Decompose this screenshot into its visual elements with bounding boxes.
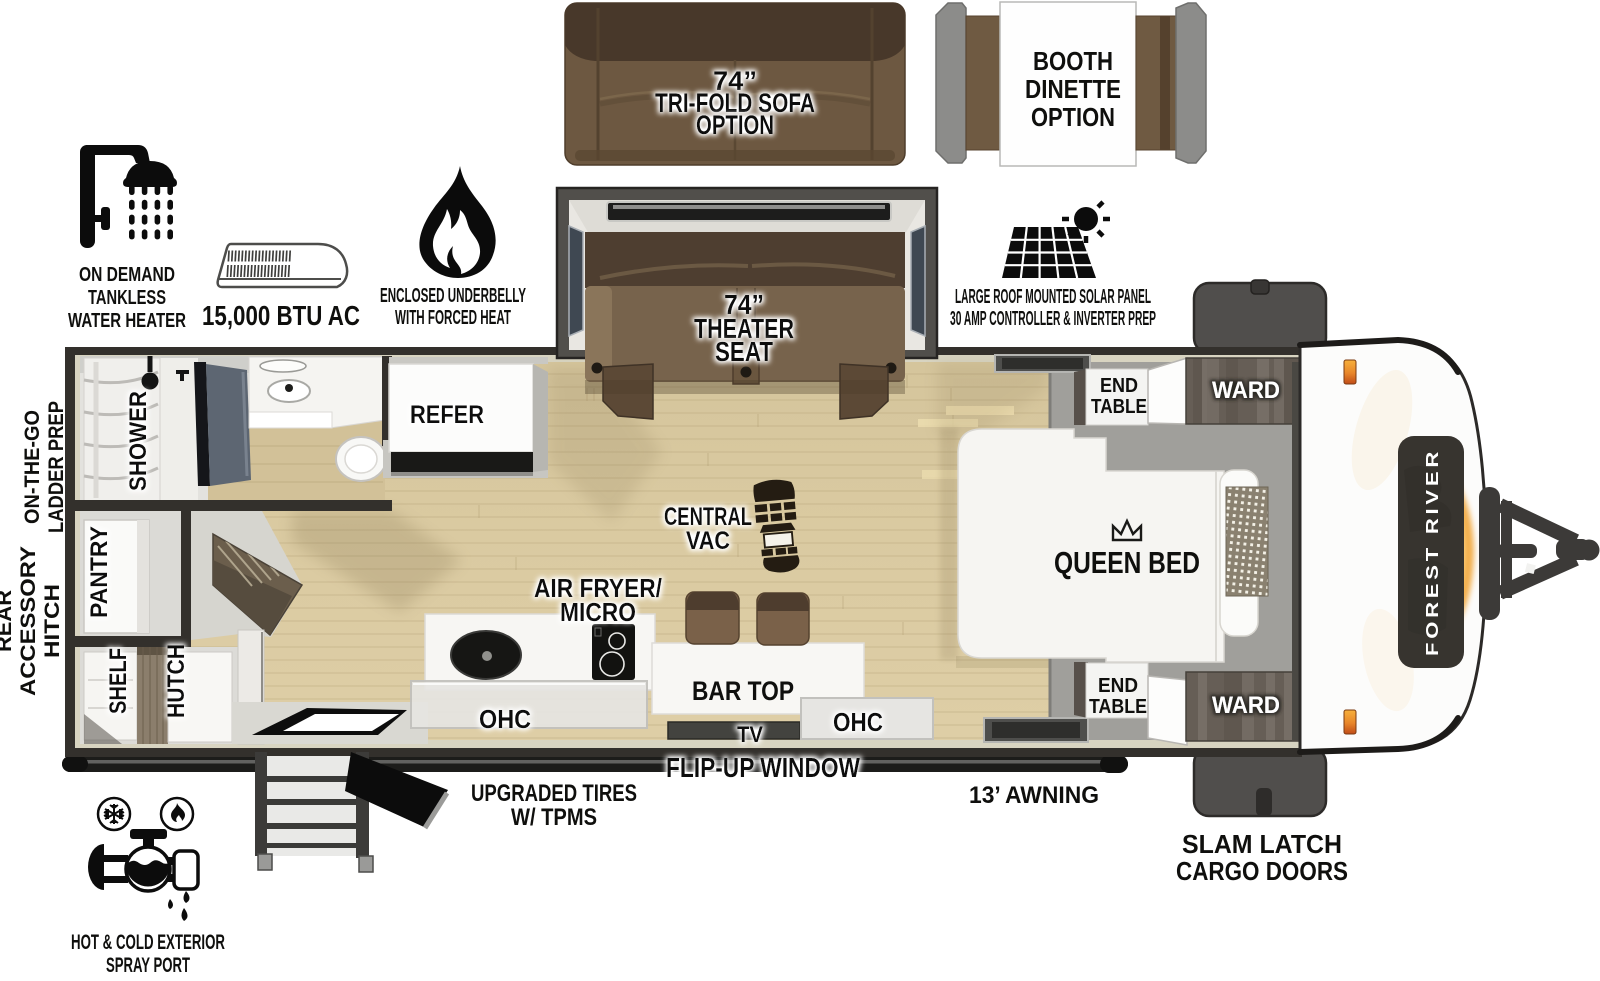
svg-text:QUEEN BED: QUEEN BED — [1054, 545, 1200, 580]
svg-text:CARGO DOORS: CARGO DOORS — [1176, 856, 1348, 886]
svg-text:15,000 BTU AC: 15,000 BTU AC — [202, 300, 360, 331]
svg-text:END: END — [1098, 675, 1138, 697]
svg-text:OHC: OHC — [479, 704, 531, 734]
svg-text:END: END — [1100, 375, 1138, 397]
svg-text:ENCLOSED UNDERBELLY: ENCLOSED UNDERBELLY — [380, 285, 526, 307]
svg-text:WITH FORCED HEAT: WITH FORCED HEAT — [395, 307, 511, 329]
svg-text:REFER: REFER — [410, 401, 484, 429]
svg-text:VAC: VAC — [686, 527, 730, 555]
svg-text:SPRAY PORT: SPRAY PORT — [106, 954, 190, 977]
svg-text:LARGE ROOF MOUNTED SOLAR PANEL: LARGE ROOF MOUNTED SOLAR PANEL — [955, 286, 1151, 308]
svg-text:SEAT: SEAT — [715, 336, 773, 367]
svg-text:HITCH: HITCH — [41, 584, 64, 658]
svg-text:DINETTE: DINETTE — [1025, 74, 1121, 104]
svg-text:ON-THE-GO: ON-THE-GO — [21, 410, 44, 524]
svg-text:HUTCH: HUTCH — [163, 644, 190, 718]
svg-text:OPTION: OPTION — [696, 110, 774, 140]
svg-text:BOOTH: BOOTH — [1033, 46, 1113, 76]
svg-text:WATER HEATER: WATER HEATER — [68, 310, 186, 332]
svg-text:OHC: OHC — [833, 707, 883, 737]
svg-text:SHELF: SHELF — [105, 648, 132, 714]
svg-text:OPTION: OPTION — [1031, 102, 1115, 132]
svg-text:TV: TV — [737, 722, 763, 747]
svg-text:ON DEMAND: ON DEMAND — [79, 264, 175, 286]
svg-text:PANTRY: PANTRY — [86, 526, 113, 618]
svg-text:REAR: REAR — [0, 590, 16, 652]
svg-text:LADDER PREP: LADDER PREP — [45, 401, 68, 533]
svg-text:BAR TOP: BAR TOP — [692, 676, 794, 706]
svg-text:SLAM LATCH: SLAM LATCH — [1182, 829, 1342, 859]
svg-text:SHOWER: SHOWER — [125, 391, 152, 491]
svg-text:30 AMP CONTROLLER & INVERTER P: 30 AMP CONTROLLER & INVERTER PREP — [950, 308, 1156, 330]
svg-text:HOT & COLD EXTERIOR: HOT & COLD EXTERIOR — [71, 931, 225, 954]
svg-text:ACCESSORY: ACCESSORY — [17, 546, 40, 696]
svg-text:FOREST RIVER: FOREST RIVER — [1422, 448, 1442, 656]
svg-text:W/ TPMS: W/ TPMS — [511, 804, 597, 831]
svg-text:FLIP-UP WINDOW: FLIP-UP WINDOW — [666, 752, 860, 783]
svg-text:UPGRADED TIRES: UPGRADED TIRES — [471, 780, 637, 807]
svg-text:13’ AWNING: 13’ AWNING — [969, 782, 1099, 809]
svg-text:TABLE: TABLE — [1089, 696, 1147, 718]
svg-text:WARD: WARD — [1212, 377, 1280, 404]
svg-text:TANKLESS: TANKLESS — [88, 287, 166, 309]
svg-text:WARD: WARD — [1212, 692, 1280, 719]
svg-text:MICRO: MICRO — [560, 597, 636, 627]
svg-text:TABLE: TABLE — [1091, 396, 1147, 418]
